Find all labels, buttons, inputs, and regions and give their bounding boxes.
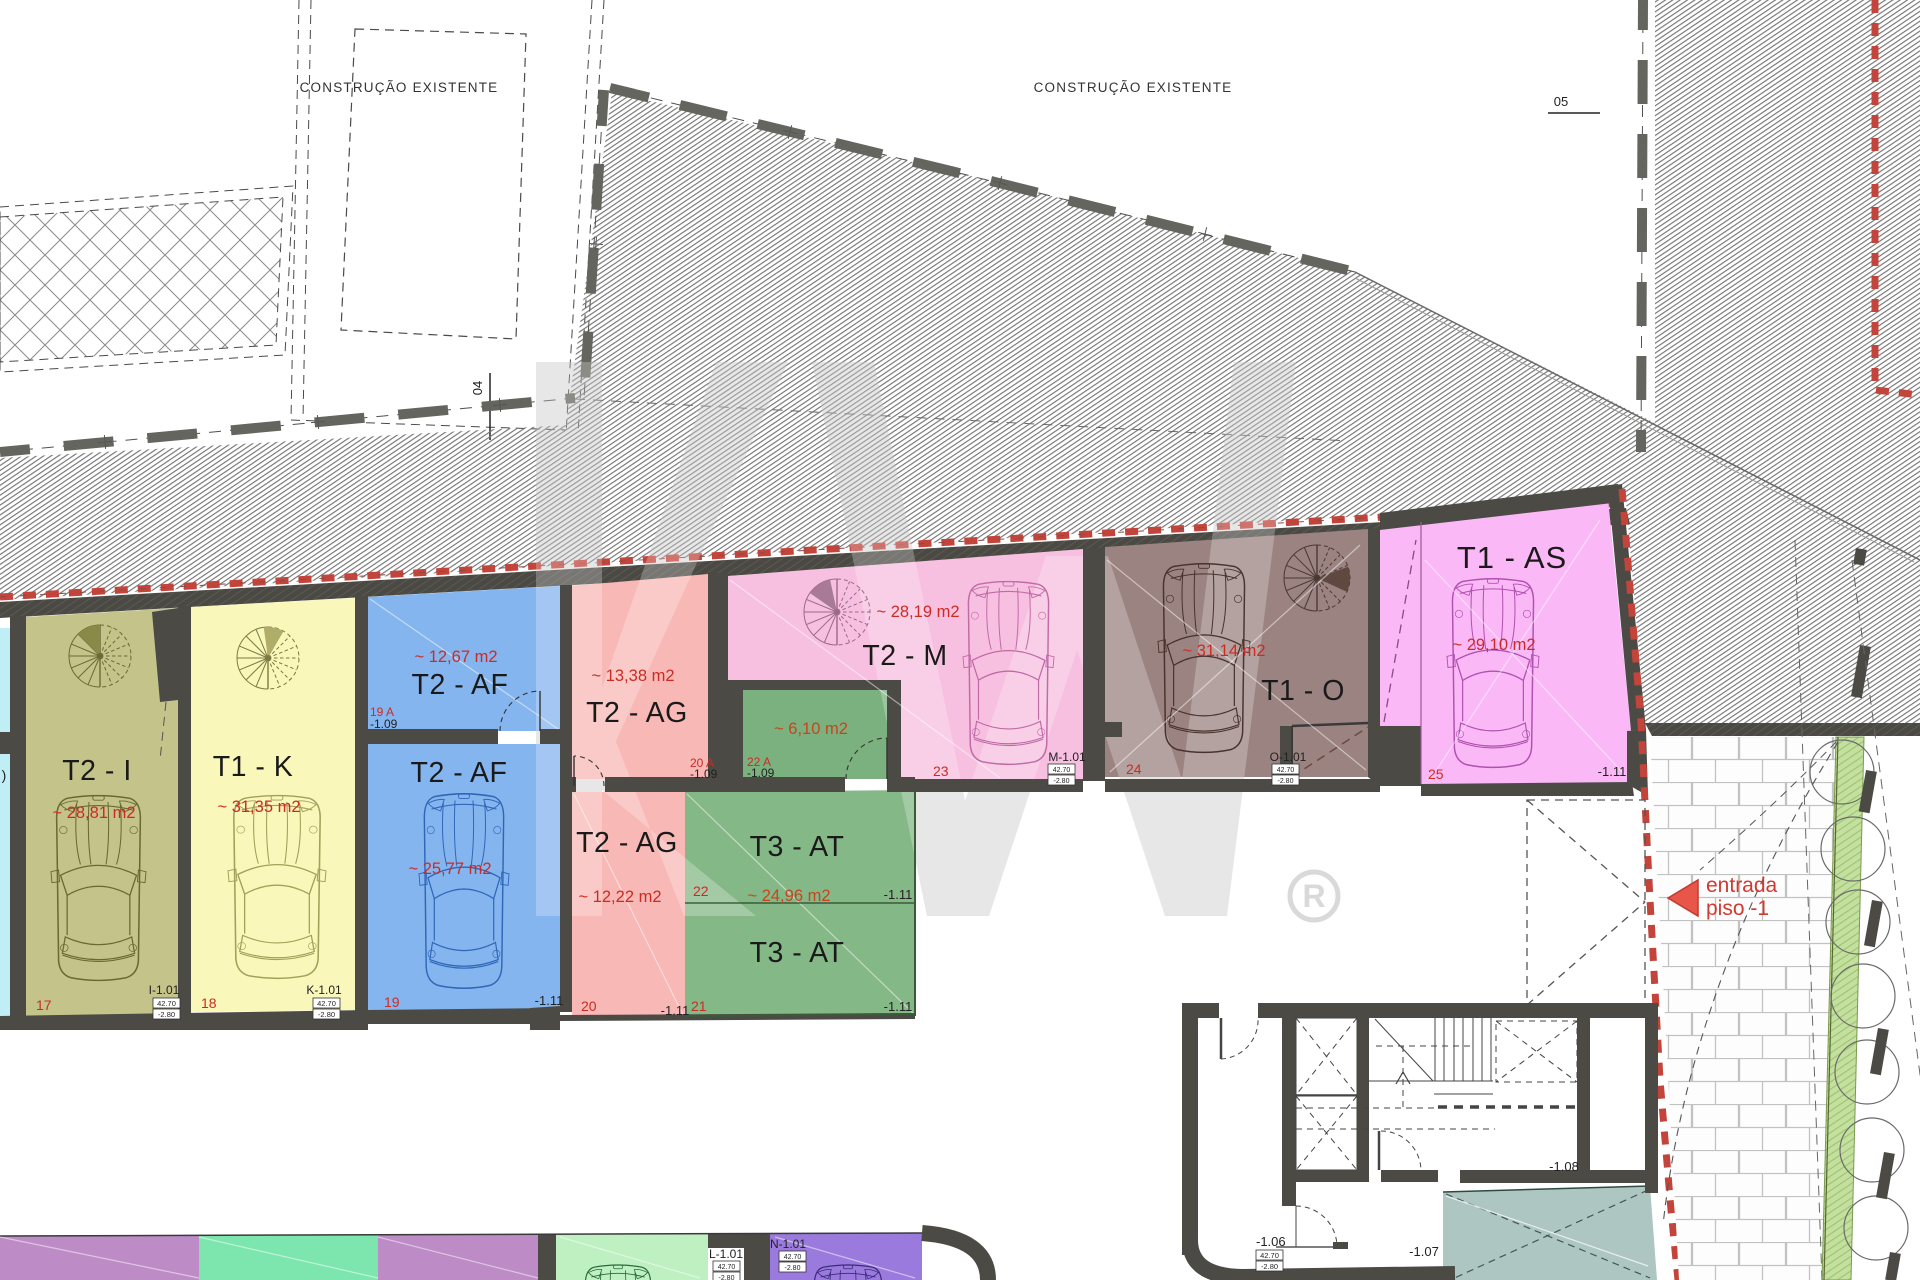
- svg-text:22: 22: [693, 883, 709, 899]
- svg-text:42.70: 42.70: [157, 999, 176, 1008]
- svg-text:O-1.01: O-1.01: [1270, 750, 1307, 764]
- svg-text:42.70: 42.70: [784, 1254, 802, 1261]
- svg-text:N-1.01: N-1.01: [770, 1237, 806, 1251]
- svg-text:T2 - AG: T2 - AG: [576, 827, 678, 859]
- svg-text:42.70: 42.70: [1053, 767, 1071, 774]
- svg-text:CONSTRUÇÃO EXISTENTE: CONSTRUÇÃO EXISTENTE: [1034, 80, 1233, 95]
- svg-text:T2 - M: T2 - M: [862, 640, 947, 672]
- svg-text:-1.09: -1.09: [370, 717, 398, 731]
- svg-text:-2.80: -2.80: [318, 1010, 335, 1019]
- svg-text:42.70: 42.70: [317, 999, 336, 1008]
- svg-text:~ 12,22 m2: ~ 12,22 m2: [578, 888, 661, 906]
- svg-text:CONSTRUÇÃO EXISTENTE: CONSTRUÇÃO EXISTENTE: [300, 80, 499, 95]
- svg-text:-2.80: -2.80: [1278, 778, 1294, 785]
- svg-text:24: 24: [1126, 761, 1142, 777]
- svg-text:42.70: 42.70: [1260, 1251, 1279, 1260]
- svg-text:-2.80: -2.80: [719, 1275, 735, 1280]
- svg-text:T1 - O: T1 - O: [1261, 675, 1345, 707]
- svg-text:-2.80: -2.80: [1054, 778, 1070, 785]
- svg-text:21: 21: [691, 998, 707, 1014]
- svg-text:T2 - I: T2 - I: [62, 755, 132, 787]
- svg-text:04: 04: [470, 381, 485, 395]
- svg-text:M-1.01: M-1.01: [1048, 750, 1086, 764]
- svg-text:piso -1: piso -1: [1706, 897, 1769, 920]
- svg-text:19: 19: [384, 994, 400, 1010]
- svg-text:T3 - AT: T3 - AT: [750, 937, 845, 969]
- svg-text:20: 20: [581, 998, 597, 1014]
- svg-text:-1.11: -1.11: [661, 1003, 690, 1018]
- svg-text:~ 28,19 m2: ~ 28,19 m2: [876, 603, 959, 621]
- svg-text:K-1.01: K-1.01: [306, 983, 342, 997]
- svg-text:-1.07: -1.07: [1409, 1244, 1439, 1259]
- svg-text:42.70: 42.70: [1277, 767, 1295, 774]
- svg-text:-2.80: -2.80: [1261, 1262, 1278, 1271]
- svg-text:~ 29,10 m2: ~ 29,10 m2: [1452, 636, 1535, 654]
- svg-text:~ 6,10 m2: ~ 6,10 m2: [774, 720, 848, 738]
- svg-text:~ 12,67 m2: ~ 12,67 m2: [414, 648, 497, 666]
- svg-text:-1.06: -1.06: [1256, 1234, 1286, 1249]
- svg-text:T2 - AG: T2 - AG: [586, 697, 688, 729]
- svg-text:T2 - AF: T2 - AF: [412, 669, 509, 701]
- svg-text:-1.08: -1.08: [1549, 1159, 1579, 1174]
- svg-text:~ 25,77 m2: ~ 25,77 m2: [408, 860, 491, 878]
- svg-text:25: 25: [1428, 766, 1444, 782]
- svg-text:T2 - AF: T2 - AF: [411, 757, 508, 789]
- svg-text:-2.80: -2.80: [158, 1010, 175, 1019]
- svg-text:-1.11: -1.11: [1598, 764, 1627, 779]
- svg-text:T1 - AS: T1 - AS: [1457, 540, 1567, 575]
- svg-text:~ 13,38 m2: ~ 13,38 m2: [591, 667, 674, 685]
- svg-text:T3 - AT: T3 - AT: [750, 831, 845, 863]
- svg-text:17: 17: [36, 997, 52, 1013]
- svg-text:T1 - K: T1 - K: [213, 751, 294, 783]
- svg-text:): ): [2, 767, 7, 783]
- svg-text:-2.80: -2.80: [785, 1265, 801, 1272]
- svg-text:entrada: entrada: [1706, 874, 1778, 897]
- svg-text:~ 28,81 m2: ~ 28,81 m2: [52, 804, 135, 822]
- svg-text:-1.11: -1.11: [884, 887, 913, 902]
- svg-text:-1.09: -1.09: [690, 767, 718, 781]
- svg-text:~ 31,14 m2: ~ 31,14 m2: [1182, 642, 1265, 660]
- svg-text:42.70: 42.70: [718, 1264, 736, 1271]
- svg-text:I-1.01: I-1.01: [149, 983, 180, 997]
- svg-text:-1.11: -1.11: [535, 993, 564, 1008]
- svg-text:L-1.01: L-1.01: [709, 1247, 743, 1261]
- svg-text:18: 18: [201, 995, 217, 1011]
- svg-text:R: R: [1302, 878, 1325, 914]
- svg-text:~ 31,35 m2: ~ 31,35 m2: [217, 798, 300, 816]
- svg-text:05: 05: [1554, 94, 1568, 109]
- svg-text:~ 24,96 m2: ~ 24,96 m2: [747, 887, 830, 905]
- svg-text:23: 23: [933, 763, 949, 779]
- svg-text:-1.11: -1.11: [884, 999, 913, 1014]
- svg-text:-1.09: -1.09: [747, 766, 775, 780]
